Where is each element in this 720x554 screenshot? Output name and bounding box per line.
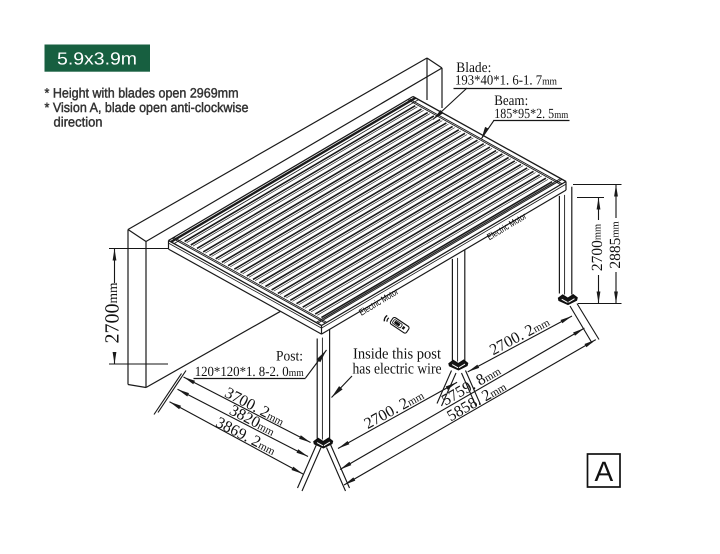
svg-text:Electric Motor: Electric Motor	[485, 211, 528, 242]
svg-text:has electric wire: has electric wire	[353, 361, 442, 378]
svg-text:* Height with blades open 2969: * Height with blades open 2969mm	[45, 85, 239, 100]
svg-text:* Vision A, blade open anti-cl: * Vision A, blade open anti-clockwise	[45, 100, 249, 115]
svg-text:2700mm: 2700mm	[101, 282, 123, 344]
svg-text:direction: direction	[54, 114, 103, 129]
svg-text:2700mm: 2700mm	[589, 224, 606, 271]
svg-text:Post:: Post:	[276, 349, 303, 365]
svg-text:2700. 2mm: 2700. 2mm	[362, 386, 428, 432]
svg-text:A: A	[594, 456, 613, 487]
svg-text:193*40*1. 6-1. 7mm: 193*40*1. 6-1. 7mm	[455, 74, 557, 89]
svg-text:185*95*2. 5mm: 185*95*2. 5mm	[494, 107, 568, 122]
svg-text:2885mm: 2885mm	[607, 221, 624, 268]
svg-text:5.9x3.9m: 5.9x3.9m	[57, 49, 137, 69]
